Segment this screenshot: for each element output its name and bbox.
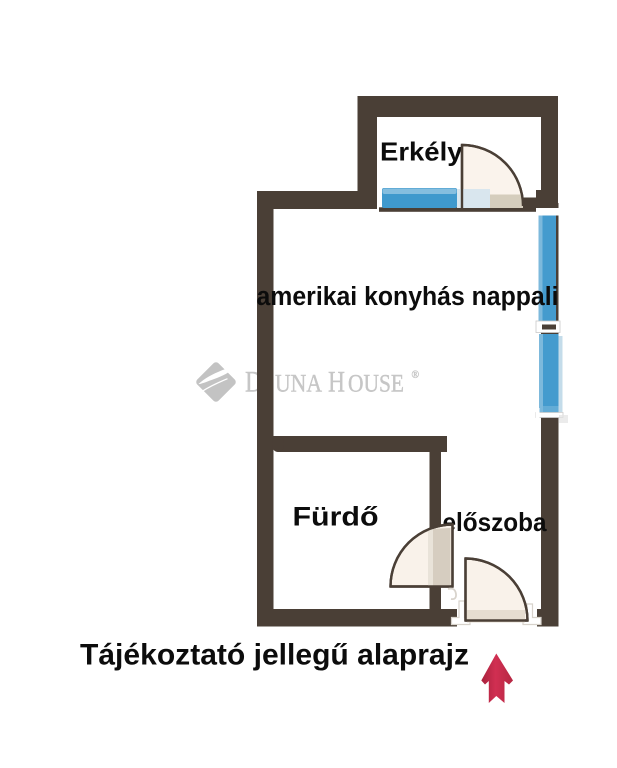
svg-text:amerikai konyhás nappali: amerikai konyhás nappali — [257, 283, 559, 311]
svg-text:előszoba: előszoba — [443, 507, 548, 537]
svg-text:Tájékoztató jellegű alaprajz: Tájékoztató jellegű alaprajz — [80, 639, 469, 672]
svg-text:Fürdő: Fürdő — [293, 502, 379, 532]
svg-text:H: H — [328, 366, 345, 399]
svg-text:UNA: UNA — [275, 371, 322, 398]
svg-text:Erkély: Erkély — [380, 137, 463, 167]
svg-text:OUSE: OUSE — [348, 371, 404, 398]
svg-text:®: ® — [412, 370, 420, 381]
